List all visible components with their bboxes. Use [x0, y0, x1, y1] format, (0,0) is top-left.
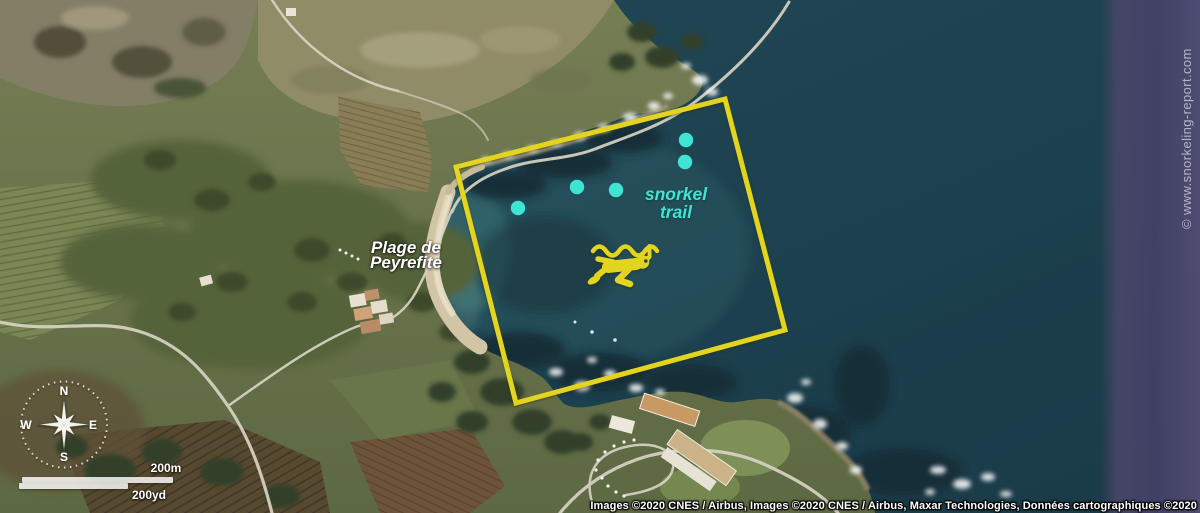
snorkeler-icon	[586, 244, 657, 287]
trail-marker-dot	[679, 133, 693, 147]
trail-marker-dot	[678, 155, 692, 169]
scale-imperial-label: 200yd	[118, 488, 180, 502]
scale-metric-label: 200m	[136, 461, 196, 475]
compass-rose: N E S W	[20, 382, 107, 468]
watermark-url: © www.snorkeling-report.com	[1179, 7, 1195, 229]
compass-east-label: E	[89, 418, 97, 432]
beach-name-label: Plage de Peyrefite	[340, 240, 472, 270]
snorkel-trail-label: snorkel trail	[611, 185, 741, 221]
snorkel-trail-line1: snorkel	[611, 185, 741, 203]
compass-north-label: N	[60, 384, 69, 398]
map-annotations: N E S W	[0, 0, 1200, 513]
snorkel-trail-line2: trail	[611, 203, 741, 221]
water-wave-icon	[593, 247, 657, 256]
compass-south-label: S	[60, 450, 68, 464]
map-canvas: N E S W Plage de Peyrefite snorkel trail…	[0, 0, 1200, 513]
compass-west-label: W	[20, 418, 32, 432]
trail-marker-dot	[570, 180, 584, 194]
beach-name-line2: Peyrefite	[340, 255, 472, 270]
trail-marker-dot	[511, 201, 525, 215]
imagery-attribution: Images ©2020 CNES / Airbus, Images ©2020…	[590, 500, 1197, 512]
scale-bar-imperial	[19, 483, 128, 489]
